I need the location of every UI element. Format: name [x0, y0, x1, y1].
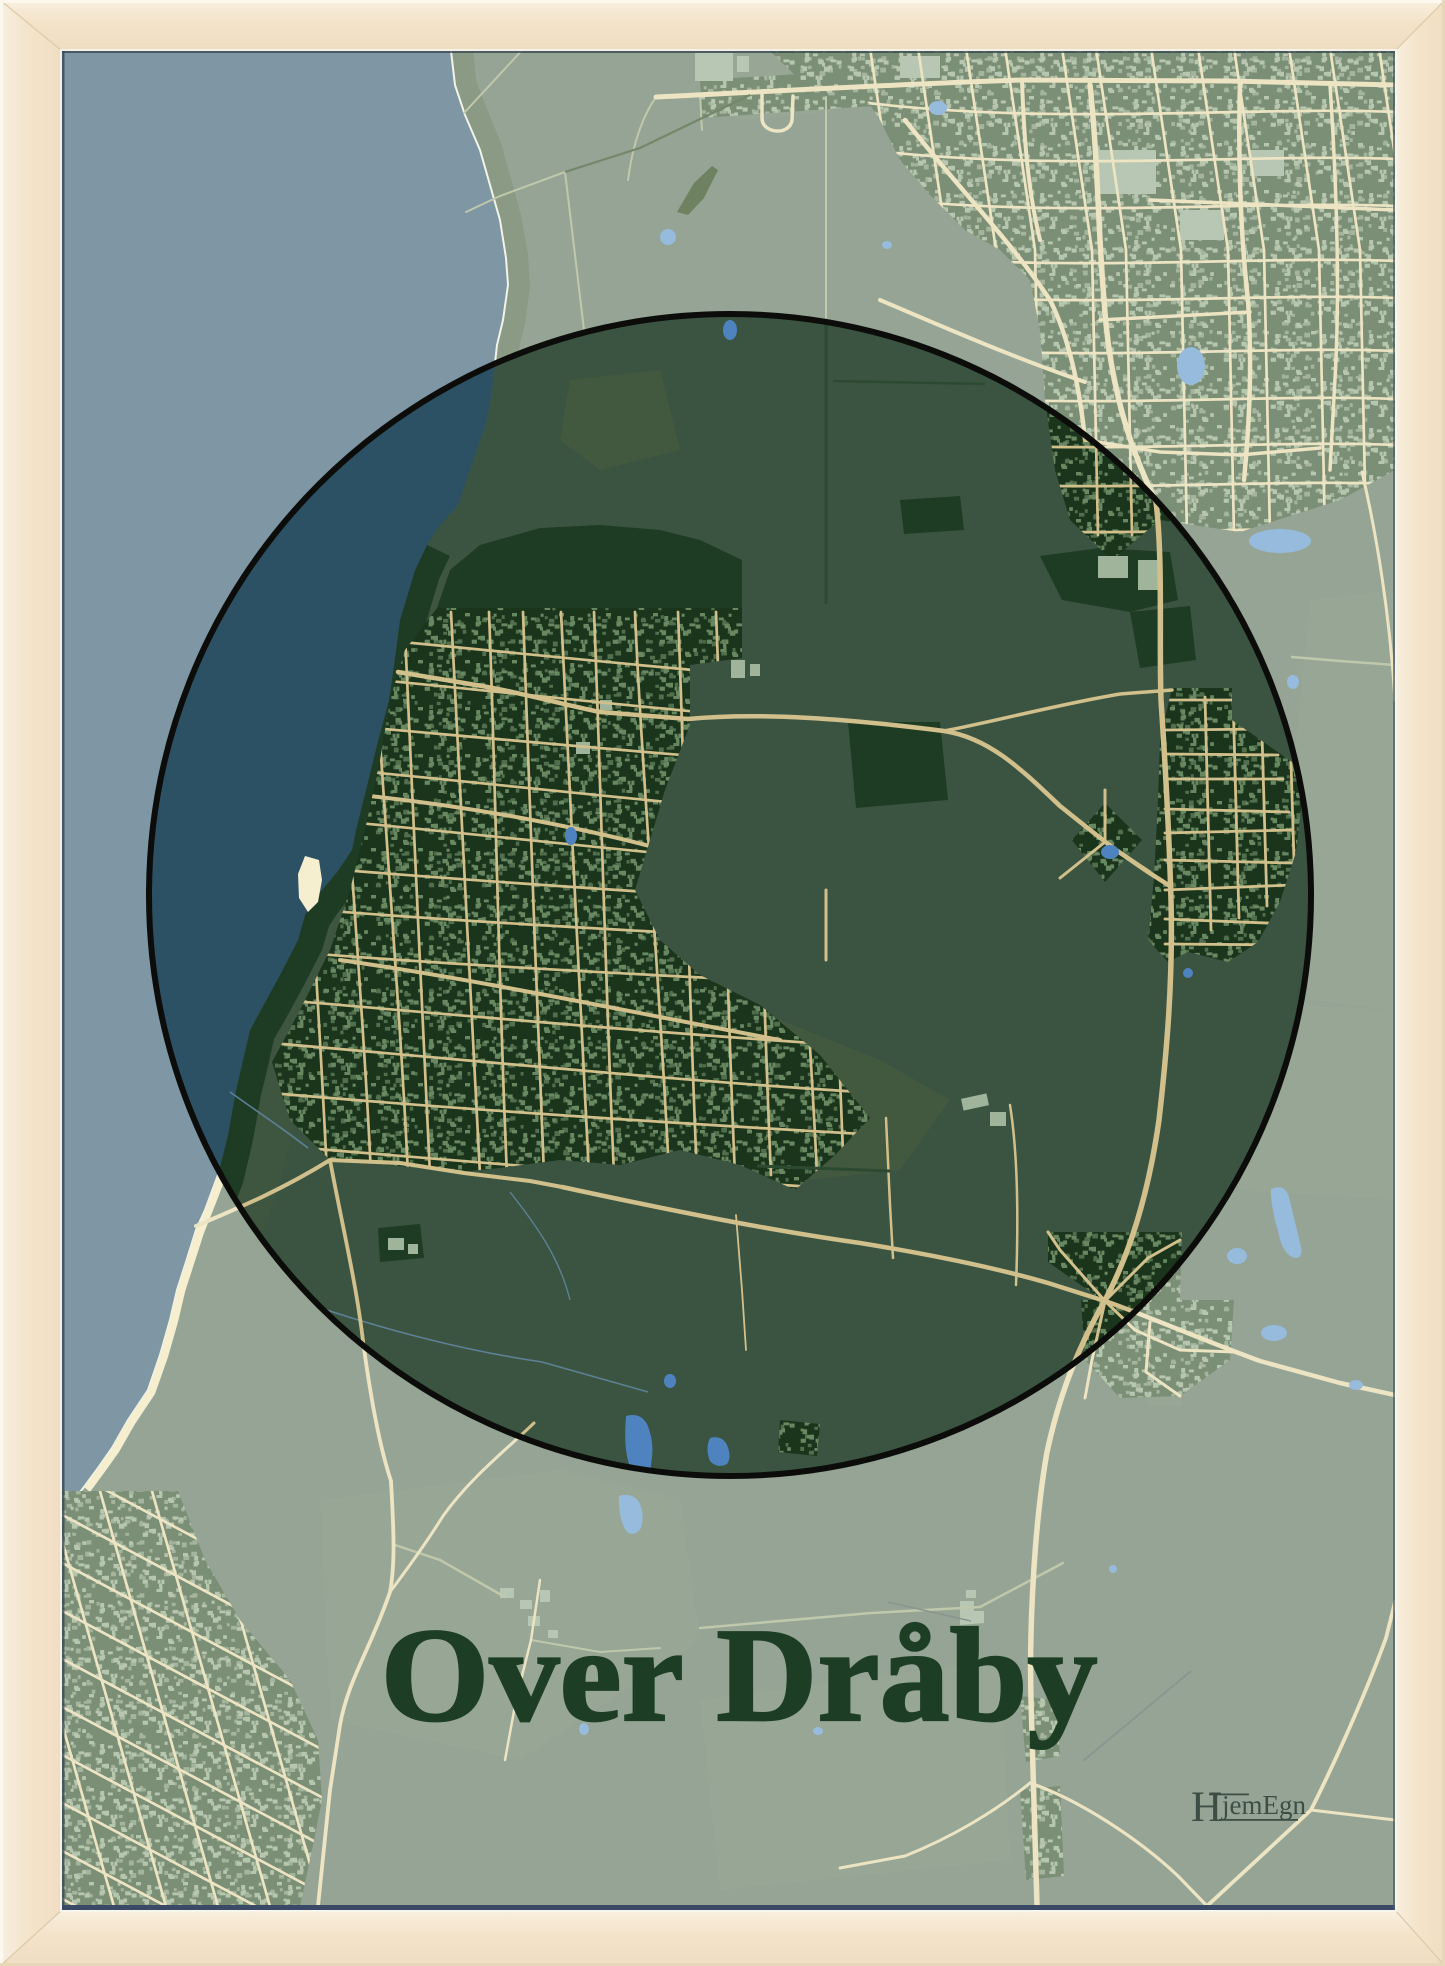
- svg-text:Over Dråby: Over Dråby: [381, 1601, 1098, 1749]
- svg-text:H: H: [1191, 1784, 1222, 1831]
